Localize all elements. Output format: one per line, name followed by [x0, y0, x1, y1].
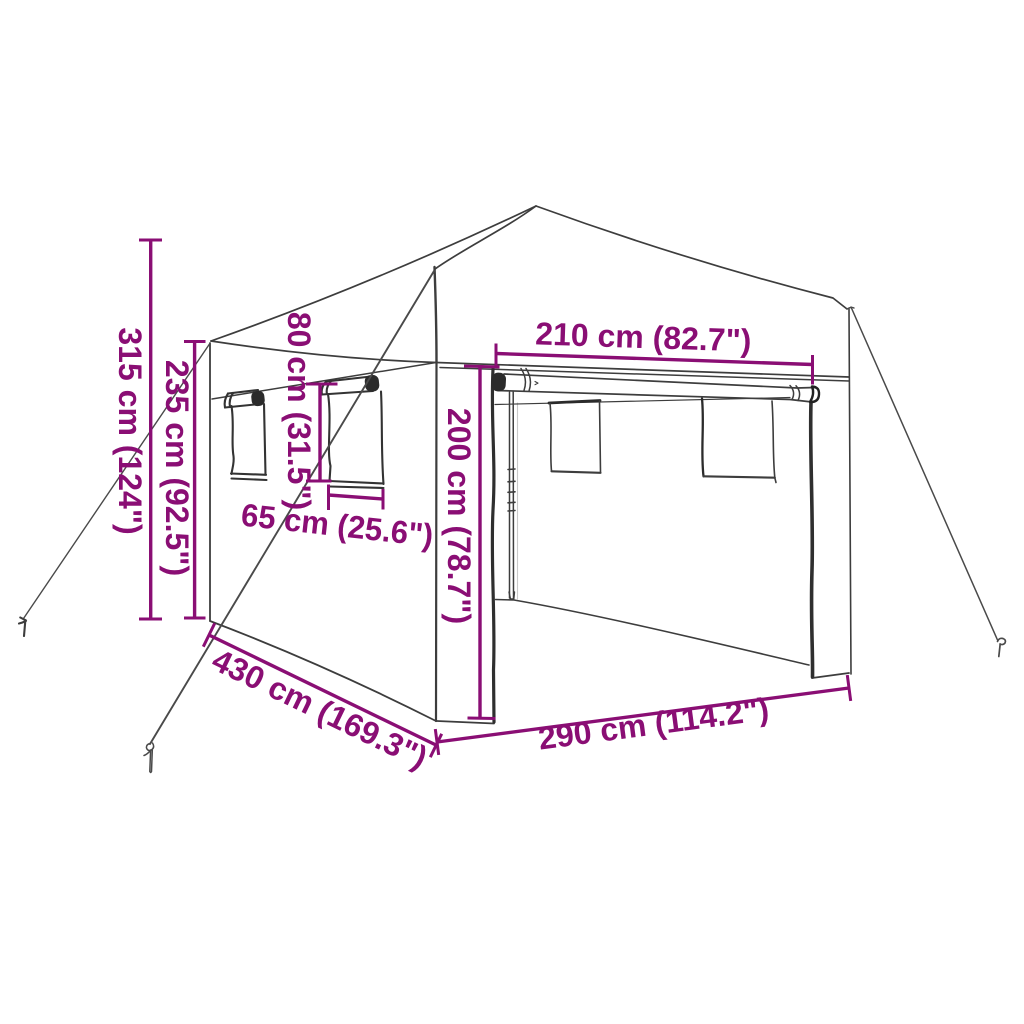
svg-text:80 cm (31.5"): 80 cm (31.5")	[281, 312, 317, 510]
svg-text:210 cm (82.7"): 210 cm (82.7")	[535, 315, 752, 358]
svg-text:315 cm (124"): 315 cm (124")	[112, 327, 148, 534]
svg-text:200 cm (78.7"): 200 cm (78.7")	[441, 408, 477, 624]
svg-text:235 cm (92.5"): 235 cm (92.5")	[159, 360, 195, 576]
